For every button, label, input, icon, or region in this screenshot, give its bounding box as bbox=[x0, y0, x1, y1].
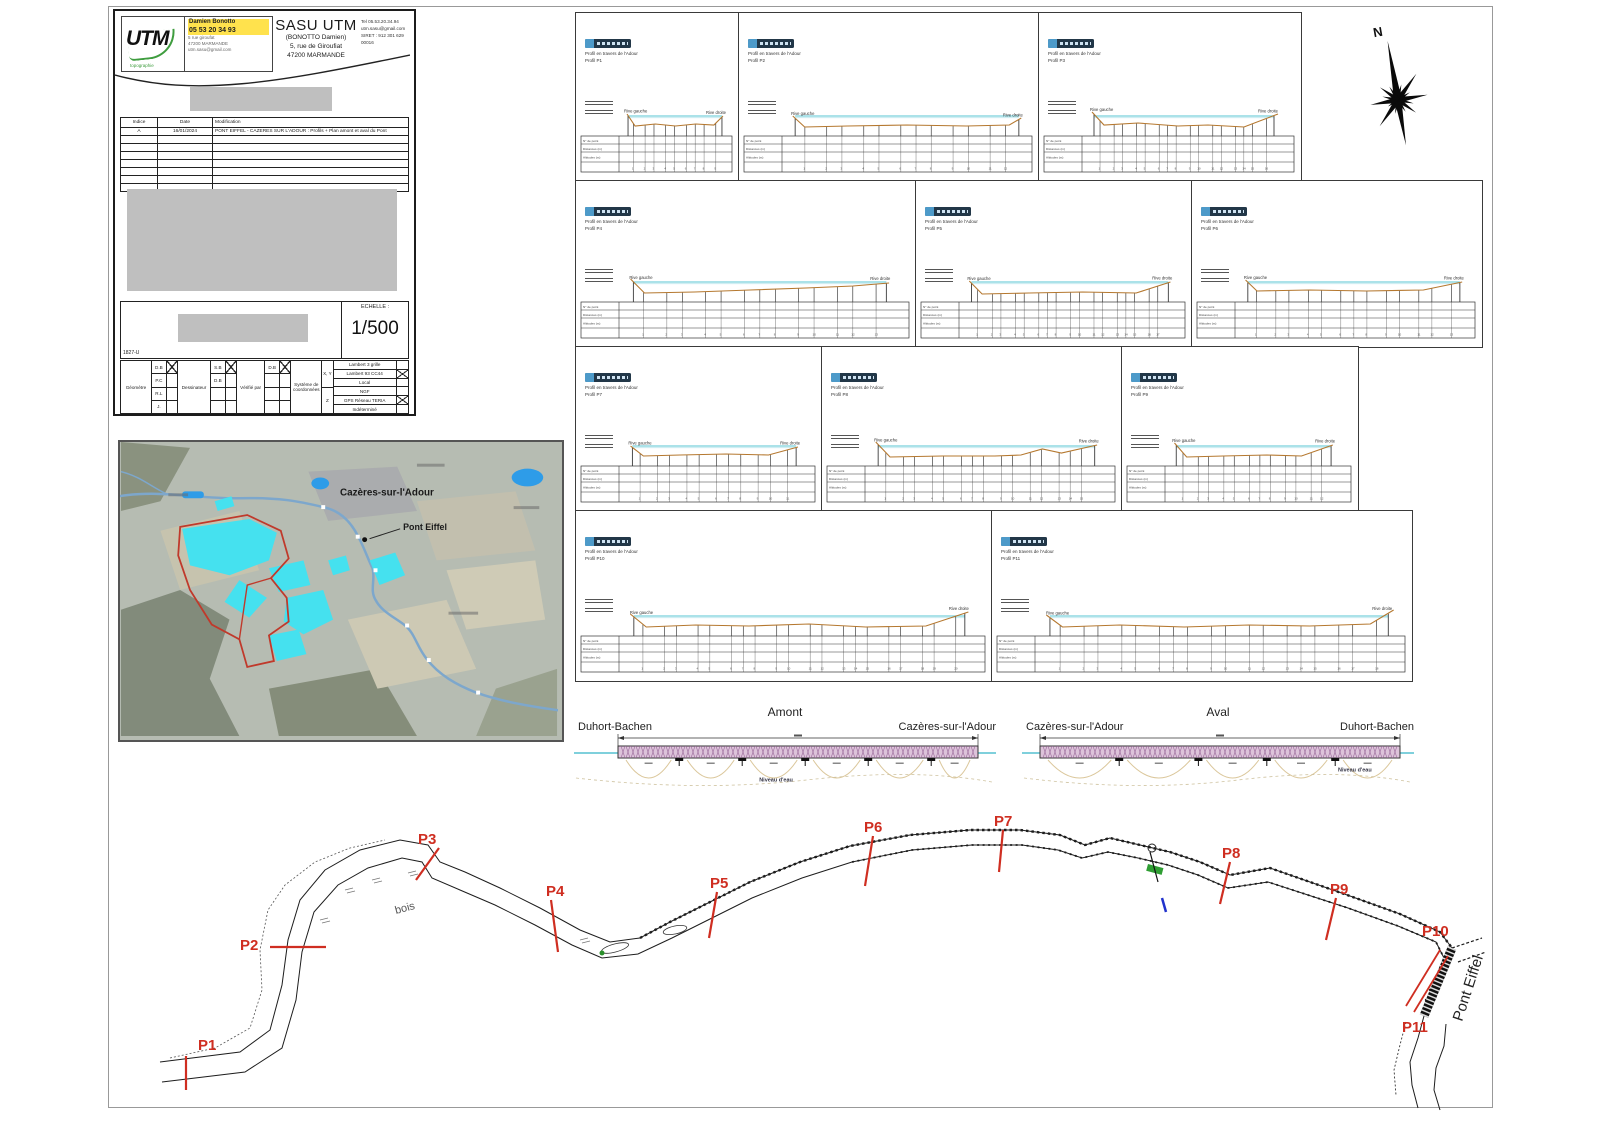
approval-cell bbox=[211, 401, 225, 413]
profile-marker-P9: P9 bbox=[1330, 881, 1348, 898]
grass-mark bbox=[408, 871, 416, 873]
table-cell-number: 12 bbox=[851, 333, 855, 337]
rive-droite-label: Rive droite bbox=[949, 606, 970, 611]
table-row-label: Distances (m) bbox=[746, 147, 765, 151]
oxbow-dotted-bank bbox=[170, 840, 385, 1058]
approval-cell: D.B bbox=[265, 361, 279, 374]
table-cell-number: 10 bbox=[769, 497, 773, 501]
table-cell-number: 13 bbox=[1234, 167, 1238, 171]
revision-table: IndiceDateModificationA16/01/2024PONT EI… bbox=[120, 117, 409, 192]
table-cell-number: 4 bbox=[685, 497, 687, 501]
revision-empty-row bbox=[121, 135, 408, 143]
badge-icon bbox=[585, 207, 594, 216]
approval-cell: NGF bbox=[334, 387, 396, 396]
profile-panel-P7: Profil en travers de l'AdourProfil P7123… bbox=[575, 346, 823, 512]
approval-cell bbox=[167, 374, 177, 387]
pier-cap bbox=[1115, 758, 1123, 761]
profile-panel-P11: Profil en travers de l'AdourProfil P1112… bbox=[991, 510, 1413, 682]
panel-title-line2: Profil P7 bbox=[585, 392, 602, 397]
profile-marker-P6: P6 bbox=[864, 819, 882, 836]
table-row-label: Altitudes (m) bbox=[583, 486, 600, 490]
span-length-mark bbox=[1297, 763, 1305, 765]
badge-icon bbox=[585, 537, 594, 546]
table-cell-number: 15 bbox=[1133, 333, 1137, 337]
company-subtitle: (BONOTTO Damien) bbox=[273, 34, 359, 43]
table-cell-number: 13 bbox=[1286, 667, 1290, 671]
table-cell-number: 10 bbox=[1224, 667, 1228, 671]
profile-panel-P10: Profil en travers de l'AdourProfil P1012… bbox=[575, 510, 993, 682]
initials-geometre: D.BP.CR.LJ. bbox=[152, 361, 167, 413]
table-cell-number: 4 bbox=[664, 167, 666, 171]
island-outline bbox=[662, 924, 687, 937]
table-cell-number: 9 bbox=[757, 497, 759, 501]
map-bridge-label: Pont Eiffel bbox=[403, 522, 447, 532]
panel-title-line2: Profil P6 bbox=[1201, 226, 1218, 231]
revision-header-cell: Date bbox=[158, 118, 213, 127]
grass-mark bbox=[372, 878, 380, 880]
profile-panel-P3: Profil en travers de l'AdourProfil P3123… bbox=[1038, 12, 1302, 182]
table-row-label: Distances (m) bbox=[583, 147, 602, 151]
pier-cap bbox=[864, 758, 872, 761]
table-row-label: N° de point bbox=[1046, 139, 1061, 143]
company-siret: SIRET : 912 301 629 00016 bbox=[361, 33, 411, 47]
approval-cell: D.B bbox=[211, 374, 225, 387]
span-length-mark bbox=[770, 763, 778, 765]
software-logo-badge bbox=[1048, 39, 1094, 48]
badge-icon bbox=[1201, 207, 1210, 216]
elevation-amont: Duhort-BachenAmontCazères-sur-l'AdourNiv… bbox=[570, 700, 1000, 802]
table-cell-number: 4 bbox=[697, 667, 699, 671]
rive-droite-label: Rive droite bbox=[780, 441, 801, 446]
profile-panel-P8: Profil en travers de l'AdourProfil P8123… bbox=[821, 346, 1123, 512]
approval-cell bbox=[280, 401, 290, 413]
profile-chart: 123456789N° de pointDistances (m)Altitud… bbox=[579, 78, 734, 178]
profile-panel-P4: Profil en travers de l'AdourProfil P4123… bbox=[575, 180, 917, 348]
table-cell-number: 11 bbox=[1310, 497, 1313, 501]
badge-text bbox=[937, 210, 968, 213]
table-cell-number: 11 bbox=[1029, 497, 1032, 501]
profile-marker-P4: P4 bbox=[546, 883, 565, 900]
table-cell-number: 12 bbox=[1220, 167, 1224, 171]
badge-text bbox=[843, 376, 874, 379]
table-cell-number: 6 bbox=[685, 167, 687, 171]
drawing-sheet: UTM topographie Damien Bonotto 05 53 20 … bbox=[0, 0, 1600, 1131]
revision-cell: PONT EIFFEL - CAZERES SUR L'ADOUR : Prof… bbox=[213, 128, 408, 135]
table-cell-number: 14 bbox=[854, 667, 858, 671]
company-contact-right: Tel 05.53.20.34.94 utm.sasu@gmail.com SI… bbox=[361, 19, 411, 47]
panel-title-line1: Profil en travers de l'Adour bbox=[585, 385, 638, 390]
option-check bbox=[397, 370, 408, 379]
river-bank-lower bbox=[162, 845, 1444, 1082]
badge-icon bbox=[1001, 537, 1010, 546]
table-cell-number: 8 bbox=[739, 497, 741, 501]
pier-cap bbox=[738, 758, 746, 761]
table-row-label: Altitudes (m) bbox=[999, 656, 1016, 660]
approval-cell: Z bbox=[322, 388, 332, 414]
approval-cell bbox=[280, 361, 290, 374]
table-row-label: Distances (m) bbox=[1046, 147, 1065, 151]
rive-droite-label: Rive droite bbox=[1152, 276, 1173, 281]
grass-mark bbox=[320, 918, 328, 920]
company-name: SASU UTM bbox=[273, 17, 359, 34]
table-cell-number: 10 bbox=[967, 167, 971, 171]
rive-droite-label: Rive droite bbox=[1315, 439, 1336, 444]
table-cell-number: 16 bbox=[887, 667, 891, 671]
rive-droite-label: Rive droite bbox=[1372, 606, 1393, 611]
panel-title-line2: Profil P4 bbox=[585, 226, 602, 231]
road-stub bbox=[1452, 938, 1482, 948]
table-cell-number: 18 bbox=[921, 667, 925, 671]
table-cell-number: 12 bbox=[820, 667, 824, 671]
approval-cell bbox=[265, 374, 279, 387]
document-ref: 1827-U bbox=[123, 350, 139, 356]
rive-gauche-label: Rive gauche bbox=[967, 276, 991, 281]
bois-label: bois bbox=[394, 900, 417, 917]
table-cell-number: 1 bbox=[803, 167, 805, 171]
rive-gauche-label: Rive gauche bbox=[791, 111, 815, 116]
table-cell-number: 5 bbox=[708, 667, 710, 671]
badge-icon bbox=[925, 207, 934, 216]
panel-title-line1: Profil en travers de l'Adour bbox=[585, 549, 638, 554]
approval-cell: P.C bbox=[152, 374, 166, 387]
table-cell-number: 1 bbox=[884, 497, 886, 501]
table-cell-number: 10 bbox=[1078, 333, 1082, 337]
profile-panel-P2: Profil en travers de l'AdourProfil P2123… bbox=[738, 12, 1040, 182]
rive-gauche-label: Rive gauche bbox=[629, 275, 653, 280]
table-cell-number: 13 bbox=[875, 333, 879, 337]
span-length-mark bbox=[951, 763, 959, 765]
table-cell-number: 6 bbox=[730, 667, 732, 671]
table-cell-number: 10 bbox=[1011, 497, 1015, 501]
span-length-mark bbox=[1076, 763, 1084, 765]
check-geometre bbox=[167, 361, 178, 413]
revision-empty-row bbox=[121, 167, 408, 175]
approval-cell bbox=[167, 401, 177, 413]
revision-header-cell: Modification bbox=[213, 118, 408, 127]
river-plan-view: P1P2P3P4P5P6P7P8P9P10P11boisPont Eiffel bbox=[110, 790, 1500, 1112]
map-graphic: Cazères-sur-l'Adour Pont Eiffel bbox=[120, 442, 558, 736]
table-cell-number: 7 bbox=[758, 333, 760, 337]
profile-chart: 123456789101112131415161718N° de pointDi… bbox=[995, 578, 1407, 678]
panel-title-line1: Profil en travers de l'Adour bbox=[1131, 385, 1184, 390]
profile-chart: 123456789101112N° de pointDistances (m)A… bbox=[742, 78, 1034, 178]
river-downstream-bank bbox=[1434, 1024, 1446, 1110]
table-cell-number: 1 bbox=[639, 497, 641, 501]
profile-chart: 12345678910111213N° de pointDistances (m… bbox=[1195, 244, 1477, 344]
grass-mark bbox=[345, 888, 353, 890]
table-cell-number: 12 bbox=[1101, 333, 1105, 337]
rive-gauche-label: Rive gauche bbox=[630, 610, 654, 615]
panel-title-line1: Profil en travers de l'Adour bbox=[925, 219, 978, 224]
check-verifie bbox=[280, 361, 291, 413]
table-cell-number: 2 bbox=[663, 667, 665, 671]
badge-icon bbox=[831, 373, 840, 382]
table-row-label: Distances (m) bbox=[1199, 313, 1218, 317]
dim-arrow-right bbox=[972, 736, 978, 740]
table-cell-number: 9 bbox=[797, 333, 799, 337]
panel-title-line1: Profil en travers de l'Adour bbox=[1048, 51, 1101, 56]
table-cell-number: 17 bbox=[1351, 667, 1355, 671]
badge-text bbox=[597, 540, 628, 543]
table-row-label: N° de point bbox=[999, 639, 1014, 643]
option-check bbox=[397, 405, 408, 413]
table-cell-number: 14 bbox=[1069, 497, 1073, 501]
profile-marker-P3: P3 bbox=[418, 831, 436, 848]
table-cell-number: 2 bbox=[991, 333, 993, 337]
approval-cell bbox=[167, 388, 177, 401]
elevation-drawing: Duhort-BachenAmontCazères-sur-l'AdourNiv… bbox=[570, 700, 1000, 802]
table-row-label: N° de point bbox=[1199, 305, 1214, 309]
table-row-label: N° de point bbox=[583, 639, 598, 643]
table-cell-number: 1 bbox=[976, 333, 978, 337]
table-cell-number: 14 bbox=[1124, 333, 1128, 337]
data-table-frame bbox=[1127, 466, 1351, 502]
table-cell-number: 12 bbox=[1262, 667, 1266, 671]
badge-icon bbox=[1131, 373, 1140, 382]
profile-tick-P3 bbox=[416, 848, 439, 880]
table-cell-number: 17 bbox=[899, 667, 903, 671]
approval-cell: GPS Réseau TERIA bbox=[334, 396, 396, 405]
table-cell-number: 7 bbox=[742, 667, 744, 671]
pier-cap bbox=[1263, 758, 1271, 761]
label-dessinateur: Dessinateur bbox=[178, 361, 211, 413]
panel-title-line2: Profil P11 bbox=[1001, 556, 1020, 561]
label-xy-z: X, YZ bbox=[322, 361, 333, 413]
approval-cell: Indéterminé bbox=[334, 405, 396, 413]
approval-cell bbox=[167, 361, 177, 374]
coordinate-option-checks bbox=[397, 361, 408, 413]
badge-text bbox=[760, 42, 791, 45]
elevation-aval: Cazères-sur-l'AdourAvalDuhort-BachenNive… bbox=[1018, 700, 1418, 802]
badge-text bbox=[1143, 376, 1174, 379]
approval-cell: R.L bbox=[152, 388, 166, 401]
water-level-label: Niveau d'eau bbox=[1338, 767, 1372, 773]
rive-gauche-label: Rive gauche bbox=[1046, 611, 1070, 616]
location-map: Cazères-sur-l'Adour Pont Eiffel bbox=[118, 440, 564, 742]
ground-line bbox=[1174, 443, 1332, 457]
table-cell-number: 16 bbox=[1148, 333, 1152, 337]
scale-box: ECHELLE : 1/500 bbox=[341, 302, 408, 358]
table-cell-number: 11 bbox=[1248, 667, 1251, 671]
table-row-label: Altitudes (m) bbox=[583, 322, 600, 326]
rive-gauche-label: Rive gauche bbox=[874, 438, 898, 443]
dim-value-mark bbox=[794, 735, 802, 737]
table-row-label: Altitudes (m) bbox=[1199, 322, 1216, 326]
option-check bbox=[397, 387, 408, 396]
software-logo-badge bbox=[925, 207, 971, 216]
rive-droite-label: Rive droite bbox=[1079, 439, 1100, 444]
company-email: utm.sasu@gmail.com bbox=[361, 26, 411, 33]
ground-line bbox=[876, 442, 1097, 457]
table-cell-number: 15 bbox=[1251, 167, 1255, 171]
software-logo-badge bbox=[1001, 537, 1047, 546]
badge-icon bbox=[585, 373, 594, 382]
table-cell-number: 11 bbox=[836, 333, 839, 337]
table-cell-number: 19 bbox=[933, 667, 937, 671]
table-row-label: N° de point bbox=[1129, 469, 1144, 473]
check-dessinateur bbox=[226, 361, 237, 413]
revision-cell: 16/01/2024 bbox=[158, 128, 213, 135]
rive-gauche-label: Rive gauche bbox=[1172, 438, 1196, 443]
table-cell-number: 8 bbox=[754, 667, 756, 671]
elevation-drawing: Cazères-sur-l'AdourAvalDuhort-BachenNive… bbox=[1018, 700, 1418, 802]
profile-chart: 1234567891011N° de pointDistances (m)Alt… bbox=[579, 408, 817, 508]
table-cell-number: 15 bbox=[866, 667, 870, 671]
profile-tick-P9 bbox=[1326, 898, 1336, 940]
panel-title-line1: Profil en travers de l'Adour bbox=[585, 219, 638, 224]
table-cell-number: 6 bbox=[899, 167, 901, 171]
software-logo-badge bbox=[585, 39, 631, 48]
table-cell-number: 12 bbox=[1320, 497, 1324, 501]
table-cell-number: 1 bbox=[642, 333, 644, 337]
table-row-label: N° de point bbox=[583, 305, 598, 309]
label-systeme-coordonnees: Système de coordonnées bbox=[291, 361, 322, 413]
software-logo-badge bbox=[585, 373, 631, 382]
table-cell-number: 7 bbox=[727, 497, 729, 501]
redacted-bar bbox=[190, 87, 332, 111]
table-row-label: Altitudes (m) bbox=[1046, 156, 1063, 160]
revision-header-cell: Indice bbox=[121, 118, 158, 127]
table-cell-number: 11 bbox=[1211, 167, 1214, 171]
rive-gauche-label: Rive gauche bbox=[628, 440, 652, 445]
panel-title-line1: Profil en travers de l'Adour bbox=[748, 51, 801, 56]
table-cell-number: 16 bbox=[1337, 667, 1341, 671]
table-row-label: N° de point bbox=[923, 305, 938, 309]
approval-cell bbox=[265, 388, 279, 401]
badge-text bbox=[1213, 210, 1244, 213]
data-table-frame bbox=[921, 302, 1185, 338]
table-cell-number: 7 bbox=[694, 167, 696, 171]
profile-tick-P8 bbox=[1220, 862, 1230, 904]
table-cell-number: 11 bbox=[786, 497, 789, 501]
table-cell-number: 14 bbox=[1299, 667, 1303, 671]
table-cell-number: 9 bbox=[775, 667, 777, 671]
logo-brand-text: UTM bbox=[126, 27, 169, 51]
table-cell-number: 17 bbox=[1156, 333, 1160, 337]
table-row-label: Distances (m) bbox=[583, 313, 602, 317]
table-cell-number: 3 bbox=[652, 167, 654, 171]
initials-verifie: D.B bbox=[265, 361, 280, 413]
profile-panel-P9: Profil en travers de l'AdourProfil P9123… bbox=[1121, 346, 1359, 512]
table-cell-number: 13 bbox=[1450, 333, 1454, 337]
rive-droite-label: Rive droite bbox=[706, 110, 727, 115]
table-row-label: N° de point bbox=[746, 139, 761, 143]
table-row-label: Distances (m) bbox=[1129, 477, 1148, 481]
table-row-label: Distances (m) bbox=[923, 313, 942, 317]
table-row-label: Altitudes (m) bbox=[1129, 486, 1146, 490]
table-cell-number: 12 bbox=[1040, 497, 1044, 501]
river-bank-upper bbox=[160, 830, 1452, 1062]
table-cell-number: 5 bbox=[1023, 333, 1025, 337]
contact-phone: 05 53 20 34 93 bbox=[188, 27, 269, 36]
software-logo-badge bbox=[585, 207, 631, 216]
span-length-mark bbox=[645, 763, 653, 765]
table-cell-number: 3 bbox=[668, 497, 670, 501]
table-row-label: Distances (m) bbox=[583, 477, 602, 481]
table-cell-number: 11 bbox=[1092, 333, 1095, 337]
redacted-block bbox=[127, 189, 397, 291]
map-town-label: Cazères-sur-l'Adour bbox=[340, 487, 434, 498]
table-cell-number: 15 bbox=[1080, 497, 1084, 501]
revision-empty-row bbox=[121, 159, 408, 167]
approval-cell: D.B bbox=[152, 361, 166, 374]
pier-cap bbox=[801, 758, 809, 761]
initials-dessinateur: S.BD.B bbox=[211, 361, 226, 413]
table-cell-number: 10 bbox=[1197, 167, 1201, 171]
approval-cell: S.B bbox=[211, 361, 225, 374]
table-cell-number: 2 bbox=[1083, 667, 1085, 671]
profile-tick-P5 bbox=[709, 892, 717, 938]
approval-cell bbox=[265, 401, 279, 413]
profile-chart: 1234567891011121314151617N° de pointDist… bbox=[919, 244, 1187, 344]
table-cell-number: 7 bbox=[971, 497, 973, 501]
option-check bbox=[397, 379, 408, 388]
revision-empty-row bbox=[121, 151, 408, 159]
panel-title-line2: Profil P1 bbox=[585, 58, 602, 63]
software-logo-badge bbox=[585, 537, 631, 546]
table-row-label: Distances (m) bbox=[829, 477, 848, 481]
table-cell-number: 8 bbox=[703, 167, 705, 171]
table-row-label: N° de point bbox=[583, 139, 598, 143]
ground-line bbox=[630, 612, 968, 627]
table-cell-number: 6 bbox=[1248, 497, 1250, 501]
table-cell-number: 10 bbox=[813, 333, 817, 337]
table-cell-number: 1 bbox=[641, 667, 643, 671]
table-cell-number: 11 bbox=[809, 667, 812, 671]
table-row-label: Altitudes (m) bbox=[583, 156, 600, 160]
span-length-mark bbox=[1364, 763, 1372, 765]
island-outline bbox=[600, 941, 629, 956]
pier-cap bbox=[1331, 758, 1339, 761]
ground-line bbox=[1046, 610, 1393, 627]
green-dot bbox=[600, 951, 605, 956]
revision-cell: A bbox=[121, 128, 158, 135]
coordinate-options: Lambert 3 grilleLambert 93 CC44LocalNGFG… bbox=[334, 361, 397, 413]
span-length-mark bbox=[1155, 763, 1163, 765]
table-cell-number: 2 bbox=[902, 497, 904, 501]
table-cell-number: 11 bbox=[1417, 333, 1420, 337]
profile-marker-P10: P10 bbox=[1422, 923, 1449, 940]
table-cell-number: 7 bbox=[915, 167, 917, 171]
dim-value-mark bbox=[1216, 735, 1224, 737]
panel-title-line2: Profil P9 bbox=[1131, 392, 1148, 397]
data-table-frame bbox=[1044, 136, 1294, 172]
panel-title-line2: Profil P3 bbox=[1048, 58, 1065, 63]
revision-row: A16/01/2024PONT EIFFEL - CAZERES SUR L'A… bbox=[121, 127, 408, 135]
table-cell-number: 14 bbox=[1242, 167, 1246, 171]
scale-strip: 1827-U ECHELLE : 1/500 bbox=[120, 301, 409, 359]
rive-gauche-label: Rive gauche bbox=[1090, 107, 1114, 112]
badge-text bbox=[1060, 42, 1091, 45]
pont-eiffel-label: Pont Eiffel bbox=[1450, 953, 1487, 1023]
approval-cell bbox=[226, 388, 236, 401]
terrain-line bbox=[1024, 774, 1410, 785]
table-cell-number: 10 bbox=[787, 667, 791, 671]
software-logo-badge bbox=[748, 39, 794, 48]
table-cell-number: 13 bbox=[1116, 333, 1120, 337]
table-row-label: Distances (m) bbox=[999, 647, 1018, 651]
right-place-label: Duhort-Bachen bbox=[1340, 721, 1414, 733]
north-label: N bbox=[1372, 24, 1384, 40]
profile-marker-P8: P8 bbox=[1222, 845, 1240, 862]
badge-text bbox=[597, 42, 628, 45]
north-arrow: N bbox=[1335, 18, 1465, 148]
table-cell-number: 6 bbox=[743, 333, 745, 337]
rive-droite-label: Rive droite bbox=[1258, 109, 1279, 114]
table-cell-number: 20 bbox=[954, 667, 958, 671]
dim-arrow-right bbox=[1394, 736, 1400, 740]
view-title: Aval bbox=[1206, 705, 1229, 719]
